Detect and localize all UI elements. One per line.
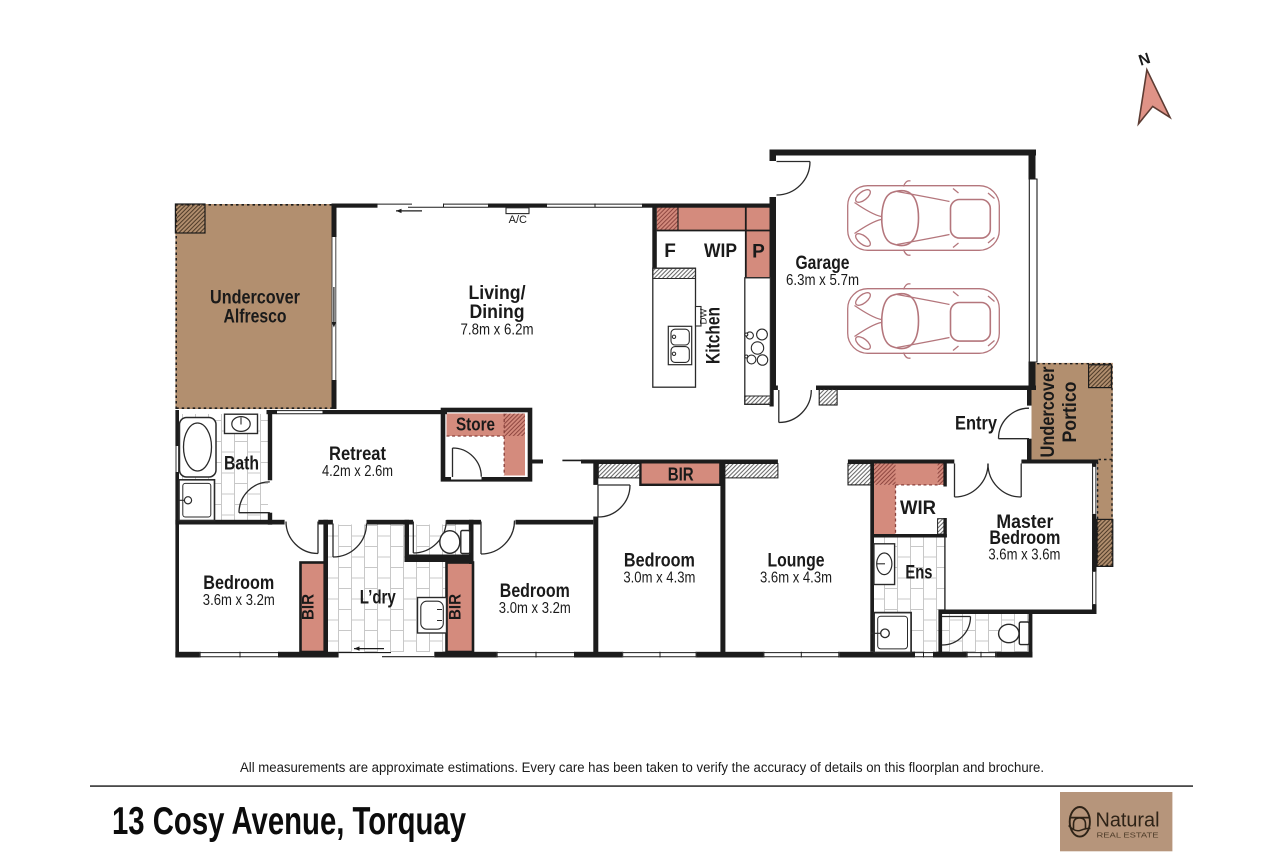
- svg-text:Bedroom: Bedroom: [203, 573, 274, 594]
- svg-text:3.6m x 4.3m: 3.6m x 4.3m: [760, 570, 832, 587]
- svg-text:DW: DW: [699, 309, 710, 325]
- svg-text:Portico: Portico: [1060, 382, 1081, 443]
- svg-text:A/C: A/C: [509, 214, 527, 226]
- svg-text:WIP: WIP: [704, 241, 737, 262]
- svg-text:6.3m x 5.7m: 6.3m x 5.7m: [786, 272, 859, 289]
- svg-text:3.0m x 3.2m: 3.0m x 3.2m: [499, 600, 571, 617]
- svg-text:Retreat: Retreat: [329, 444, 387, 465]
- svg-text:Living/: Living/: [469, 283, 527, 304]
- svg-text:BIR: BIR: [446, 594, 465, 620]
- svg-text:Bedroom: Bedroom: [624, 551, 695, 572]
- svg-text:P: P: [752, 242, 765, 263]
- svg-text:Ens: Ens: [905, 563, 932, 584]
- svg-text:Bath: Bath: [224, 454, 259, 475]
- svg-text:3.6m x 3.6m: 3.6m x 3.6m: [988, 547, 1060, 564]
- svg-text:Undercover: Undercover: [210, 288, 301, 309]
- svg-text:F: F: [664, 241, 676, 262]
- svg-text:3.6m x 3.2m: 3.6m x 3.2m: [203, 592, 275, 609]
- svg-text:WIR: WIR: [900, 498, 936, 519]
- svg-text:Store: Store: [456, 415, 495, 435]
- svg-text:Garage: Garage: [796, 253, 850, 274]
- svg-text:Undercover: Undercover: [1038, 366, 1059, 458]
- svg-text:L’dry: L’dry: [360, 588, 396, 609]
- svg-text:3.0m x 4.3m: 3.0m x 4.3m: [623, 570, 695, 587]
- svg-text:4.2m x 2.6m: 4.2m x 2.6m: [322, 463, 393, 480]
- svg-text:Entry: Entry: [955, 414, 997, 435]
- svg-text:Alfresco: Alfresco: [224, 307, 287, 328]
- svg-text:7.8m x 6.2m: 7.8m x 6.2m: [461, 322, 534, 339]
- svg-text:Dining: Dining: [470, 302, 525, 323]
- svg-text:REAL ESTATE: REAL ESTATE: [1097, 833, 1159, 840]
- svg-text:Bedroom: Bedroom: [500, 581, 570, 602]
- svg-text:Lounge: Lounge: [768, 551, 825, 572]
- svg-text:BIR: BIR: [299, 594, 318, 620]
- svg-text:All measurements are approxima: All measurements are approximate estimat…: [240, 760, 1044, 775]
- svg-text:BIR: BIR: [668, 465, 694, 485]
- svg-text:Natural: Natural: [1096, 810, 1160, 832]
- svg-text:13 Cosy Avenue, Torquay: 13 Cosy Avenue, Torquay: [112, 800, 466, 843]
